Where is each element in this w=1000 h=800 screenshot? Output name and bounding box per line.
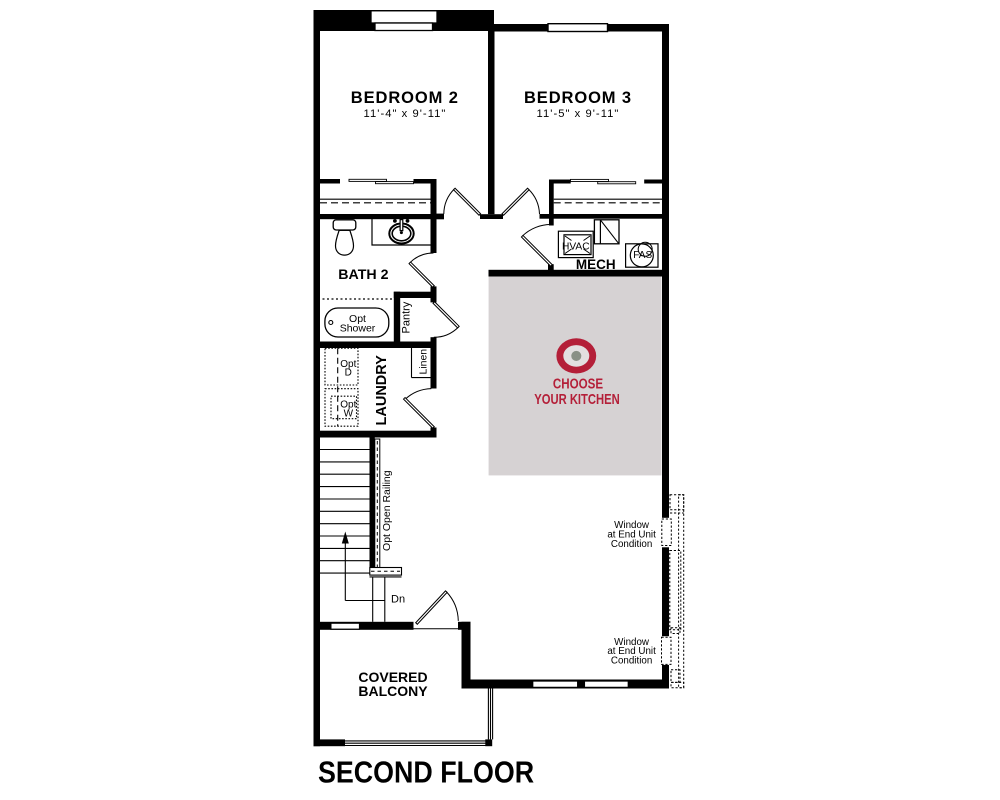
svg-text:LAUNDRY: LAUNDRY xyxy=(374,355,390,426)
svg-text:SECOND FLOOR: SECOND FLOOR xyxy=(318,756,534,790)
svg-text:D: D xyxy=(345,367,352,378)
svg-text:Linen: Linen xyxy=(418,349,430,375)
svg-text:BEDROOM 2: BEDROOM 2 xyxy=(351,89,459,107)
svg-text:FAS: FAS xyxy=(633,250,652,261)
svg-text:HVAC: HVAC xyxy=(562,241,590,252)
svg-text:Shower: Shower xyxy=(340,323,376,335)
svg-text:Dn: Dn xyxy=(391,594,405,606)
svg-text:W: W xyxy=(344,408,354,419)
svg-text:YOUR KITCHEN: YOUR KITCHEN xyxy=(534,391,620,408)
svg-text:BEDROOM 3: BEDROOM 3 xyxy=(524,89,632,107)
svg-text:Condition: Condition xyxy=(611,656,652,667)
svg-text:BATH 2: BATH 2 xyxy=(338,267,388,283)
svg-text:Pantry: Pantry xyxy=(401,301,413,333)
svg-text:BALCONY: BALCONY xyxy=(358,683,428,699)
svg-text:CHOOSE: CHOOSE xyxy=(553,375,603,392)
svg-text:11'-5" x 9'-11": 11'-5" x 9'-11" xyxy=(537,108,620,120)
svg-text:MECH: MECH xyxy=(576,257,616,272)
svg-text:Condition: Condition xyxy=(611,539,652,550)
svg-text:Opt Open Railing: Opt Open Railing xyxy=(381,470,393,551)
svg-text:11'-4" x 9'-11": 11'-4" x 9'-11" xyxy=(364,108,447,120)
